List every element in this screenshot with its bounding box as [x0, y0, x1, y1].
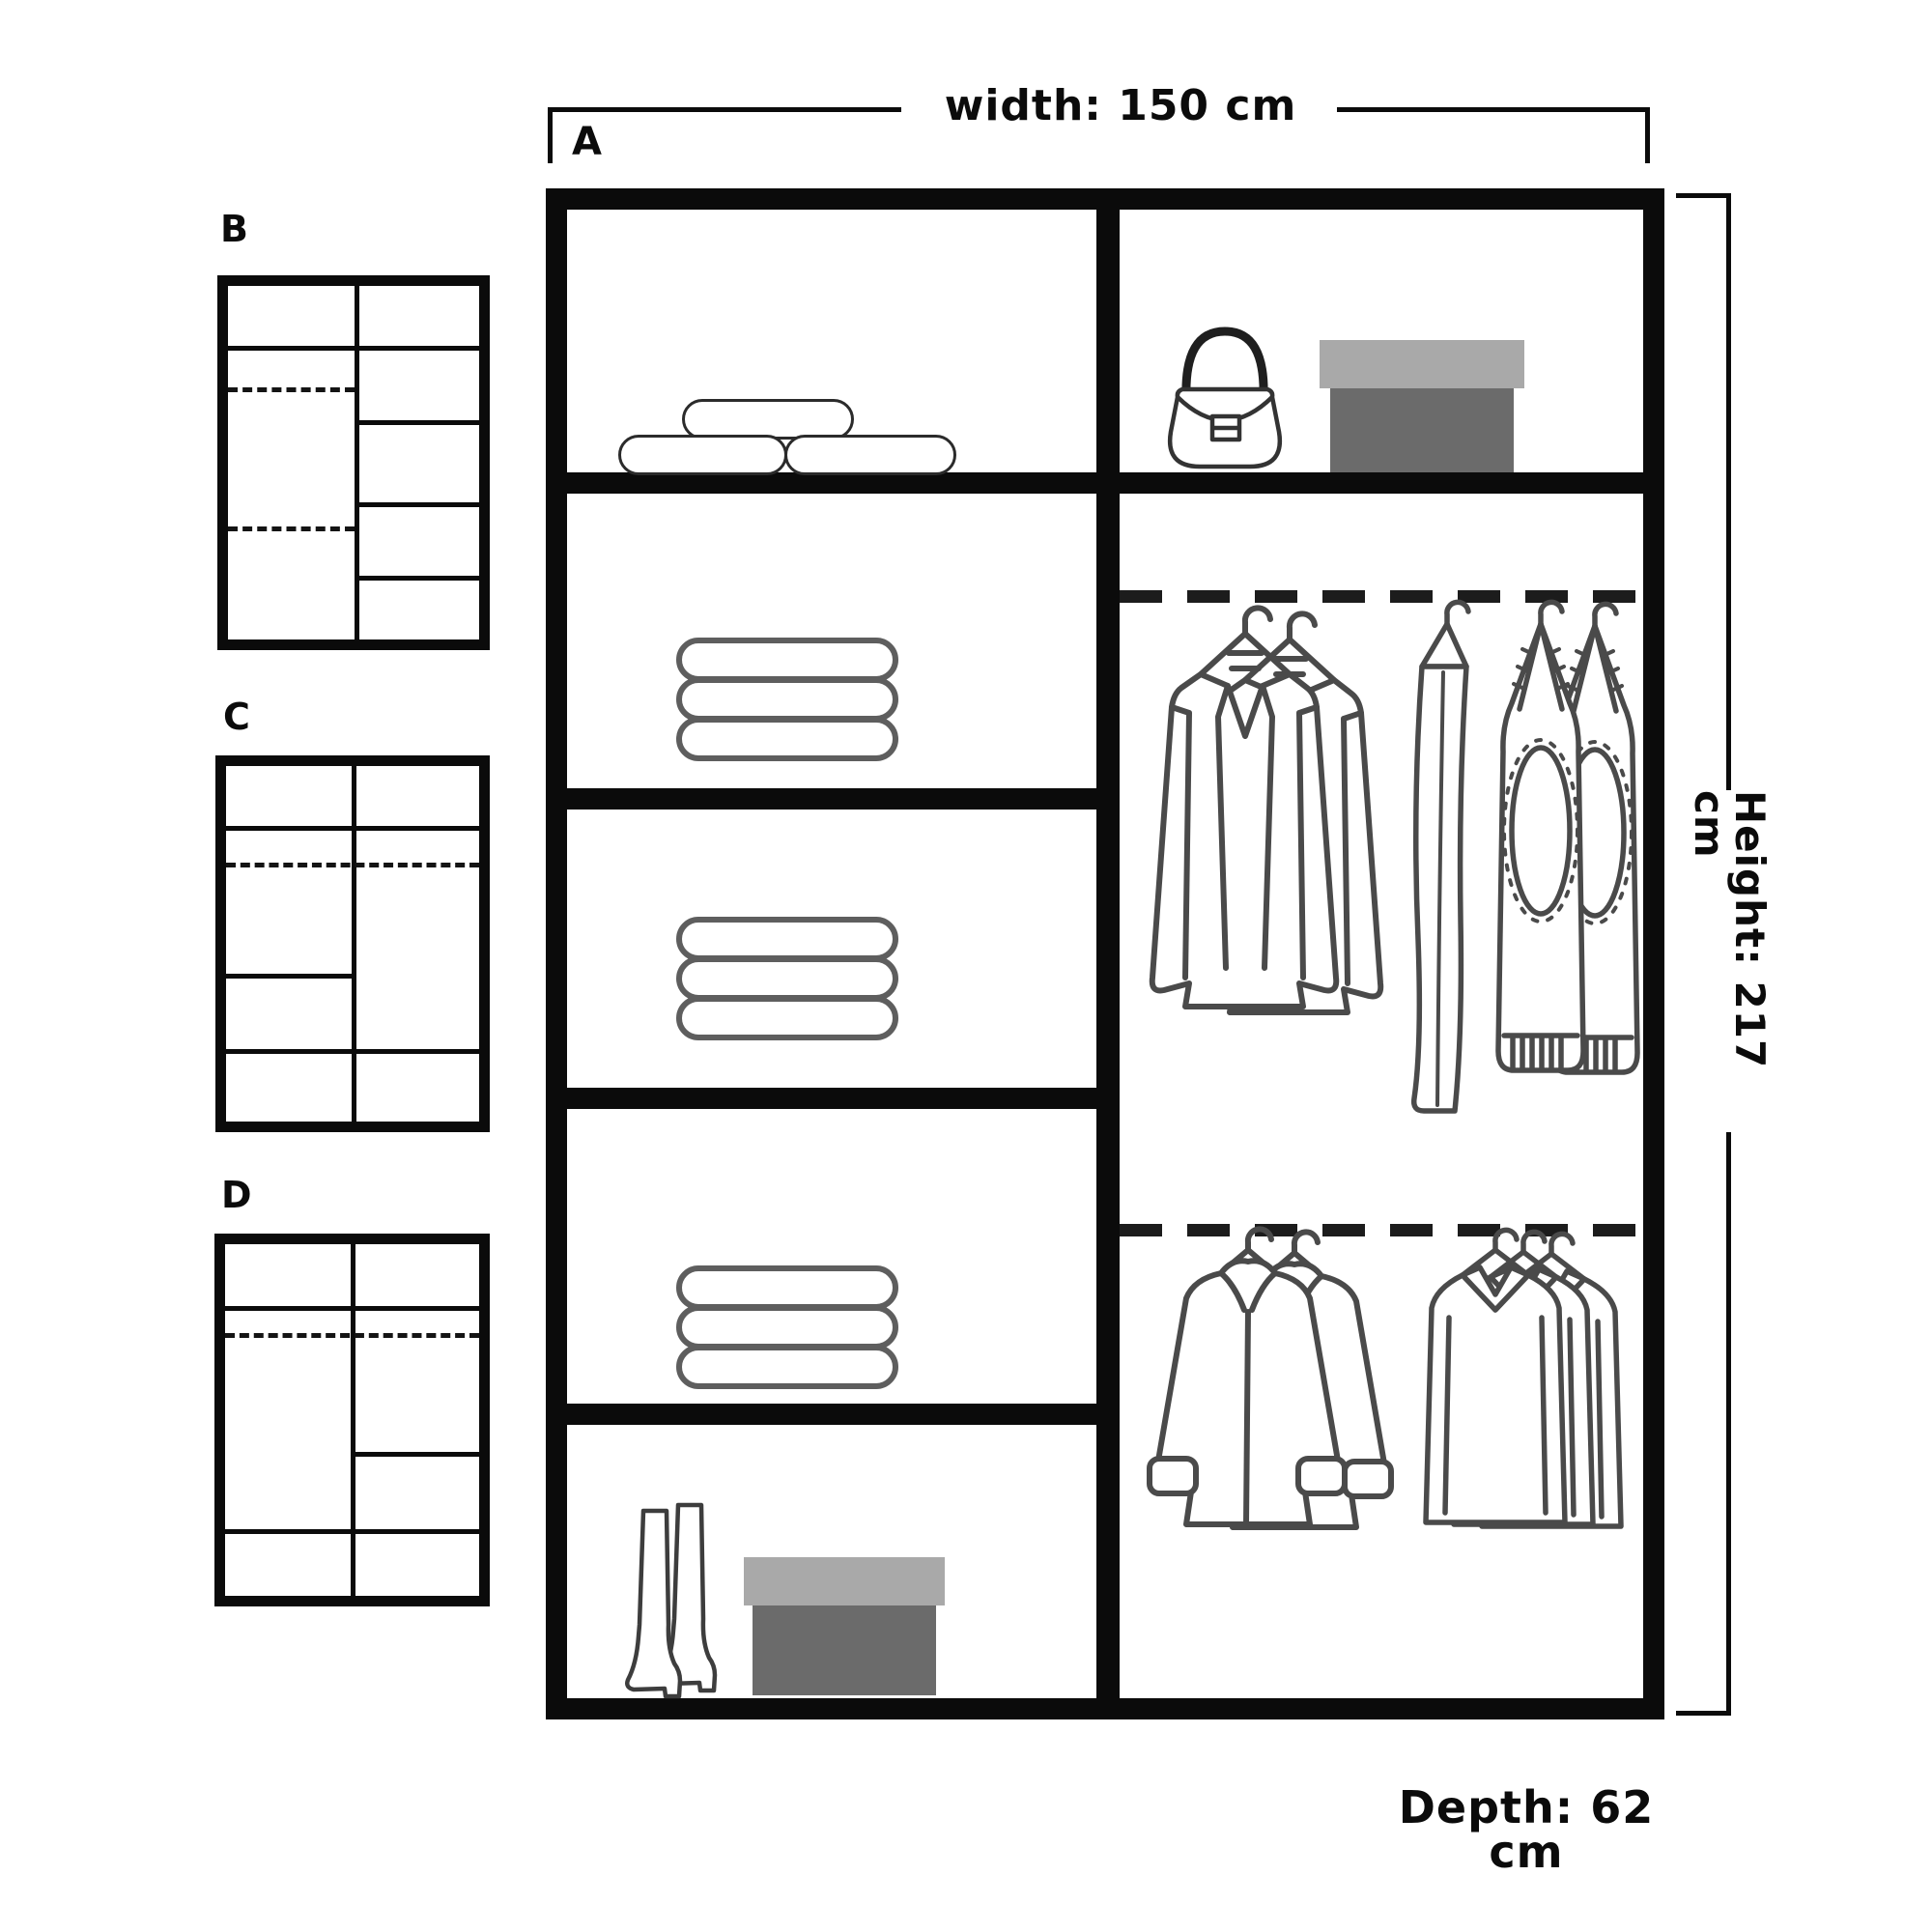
folded-towel-icon: [676, 677, 898, 722]
variant-d-label: D: [221, 1177, 252, 1213]
width-dimension-tick-right: [1645, 107, 1650, 163]
shoebox-base-icon: [753, 1605, 936, 1695]
hanging-jackets-icon: [1133, 591, 1394, 1055]
width-dimension-line-right: [1337, 107, 1650, 112]
width-dimension-tick-left: [548, 107, 553, 163]
height-dimension-tick-top: [1676, 193, 1731, 198]
hanging-trousers-icon: [1399, 589, 1645, 1150]
thumb-shelf: [226, 826, 479, 831]
hanging-coats-icon: [1136, 1225, 1406, 1544]
height-dimension-line-bottom: [1726, 1132, 1731, 1716]
shelf-divider-left-4: [567, 1404, 1096, 1425]
thumb-shelf: [226, 974, 352, 979]
thumb-rail: [226, 863, 479, 867]
thumb-shelf: [359, 502, 479, 507]
height-dimension-tick-bottom: [1676, 1711, 1731, 1716]
shelf-divider-right-top: [1120, 472, 1643, 494]
variant-b-thumbnail: [217, 275, 490, 650]
folded-towel-icon: [676, 917, 898, 961]
folded-towel-icon: [676, 996, 898, 1040]
height-dimension-label: Height: 217 cm: [1702, 790, 1756, 1132]
handbag-icon: [1157, 308, 1293, 472]
thumb-rail: [225, 1333, 479, 1338]
depth-dimension-label: Depth: 62 cm: [1372, 1785, 1681, 1874]
folded-towel-icon: [676, 717, 898, 761]
width-dimension-line-left: [548, 107, 901, 112]
thumb-rail: [228, 387, 355, 392]
folded-towel-icon: [676, 1345, 898, 1389]
variant-b-label: B: [220, 211, 248, 247]
thumb-shelf: [226, 1049, 479, 1054]
thumb-shelf: [225, 1529, 479, 1534]
thumb-shelf: [355, 1452, 479, 1457]
variant-d-thumbnail: [214, 1234, 490, 1606]
shelf-divider-left-3: [567, 1088, 1096, 1109]
shelf-divider-left-2: [567, 788, 1096, 810]
pillow-icon: [618, 435, 787, 475]
pillow-icon: [682, 399, 854, 440]
thumb-partition: [351, 1244, 355, 1596]
wardrobe-interior-diagram: width: 150 cm A: [0, 0, 1932, 1932]
folded-towel-icon: [676, 956, 898, 1001]
thumb-shelf: [359, 576, 479, 581]
height-dimension-line-top: [1726, 193, 1731, 790]
folded-towel-icon: [676, 638, 898, 682]
thumb-shelf: [228, 346, 355, 351]
boots-icon: [624, 1497, 740, 1700]
thumb-shelf: [359, 420, 479, 425]
main-wardrobe-label: A: [572, 123, 602, 161]
shelf-divider-left-1: [567, 472, 1096, 494]
pillow-icon: [784, 435, 956, 475]
variant-c-thumbnail: [215, 755, 490, 1132]
folded-towel-icon: [676, 1305, 898, 1350]
shoebox-base-icon: [1330, 388, 1514, 472]
thumb-partition: [355, 286, 359, 639]
width-dimension-label: width: 150 cm: [908, 85, 1333, 128]
shoebox-lid-icon: [744, 1557, 945, 1605]
thumb-partition: [352, 766, 356, 1122]
hanging-shirts-icon: [1399, 1225, 1650, 1534]
thumb-rail: [228, 526, 355, 531]
center-partition: [1096, 210, 1120, 1698]
folded-towel-icon: [676, 1265, 898, 1310]
variant-c-label: C: [223, 698, 250, 735]
shoebox-lid-icon: [1320, 340, 1524, 388]
thumb-shelf: [359, 346, 479, 351]
thumb-shelf: [225, 1306, 479, 1311]
